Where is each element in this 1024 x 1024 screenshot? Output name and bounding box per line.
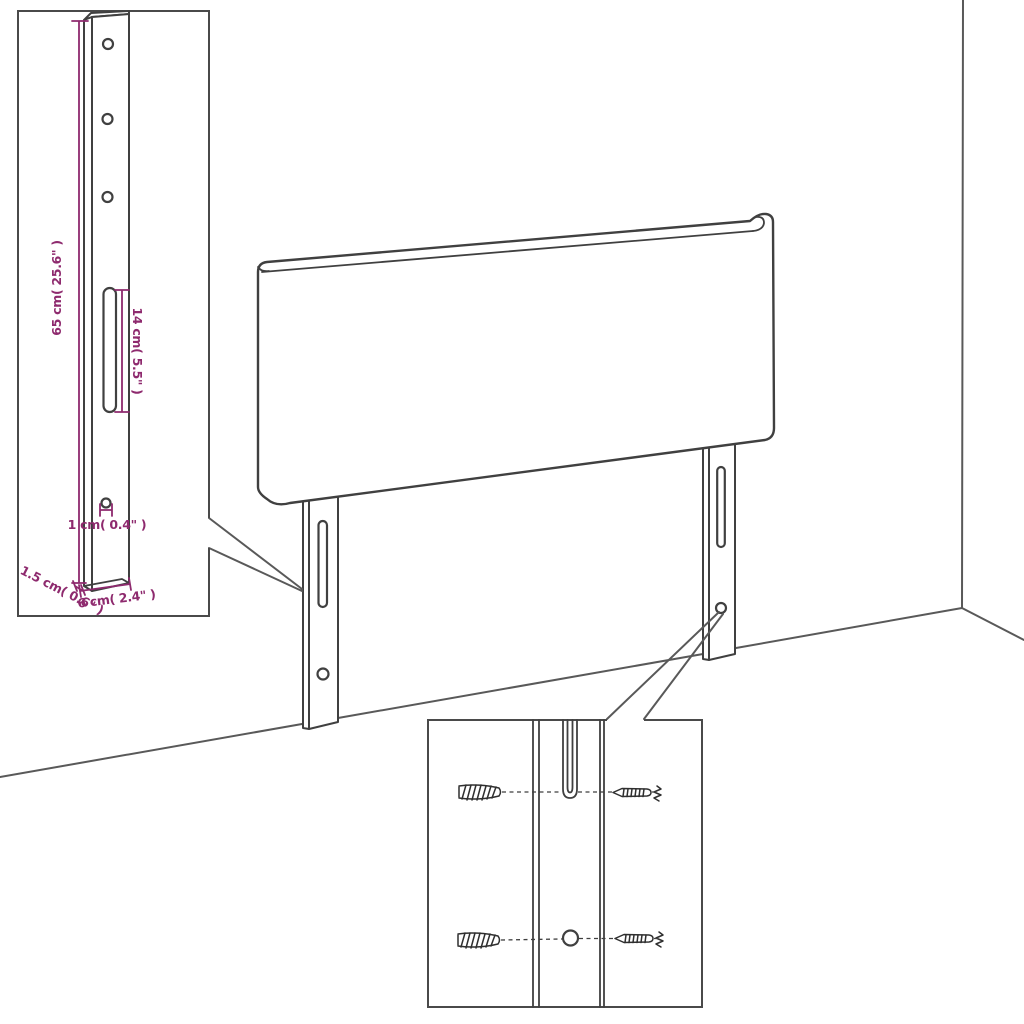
dimension-detail-inset: 65 cm( 25.6" ) 14 cm( 5.5" ) 1 cm( 0.4" … [18, 11, 209, 617]
screw-turn-squiggle [656, 932, 663, 947]
dimension-label-14cm: 14 cm( 5.5" ) [130, 307, 145, 394]
mounting-detail-inset [428, 720, 702, 1007]
mounting-hole [563, 931, 578, 946]
screw-turn-squiggle [654, 786, 661, 801]
callout-lines-left-inset [209, 518, 302, 591]
dimension-label-1cm: 1 cm( 0.4" ) [68, 517, 147, 532]
mounting-slot [563, 720, 577, 798]
headboard-left-leg [303, 493, 338, 729]
headboard-panel [258, 214, 774, 504]
screw-icon [613, 786, 661, 801]
alignment-dashes-bottom-row [501, 939, 658, 941]
headboard-outline [258, 214, 774, 504]
diagram-canvas: 65 cm( 25.6" ) 14 cm( 5.5" ) 1 cm( 0.4" … [0, 0, 1024, 1024]
left-leg-front-face [309, 493, 338, 729]
dimension-label-65cm: 65 cm( 25.6" ) [49, 240, 64, 335]
wall-corner-vertical-line [962, 0, 963, 608]
leg-strip-edges [533, 720, 604, 1007]
headboard-right-leg [703, 439, 735, 660]
dimension-leg-height: 65 cm( 25.6" ) [49, 21, 88, 583]
wall-plug-icon [459, 785, 501, 800]
screw-icon [615, 932, 663, 947]
assembly-diagram-page: 65 cm( 25.6" ) 14 cm( 5.5" ) 1 cm( 0.4" … [0, 0, 1024, 1024]
mounting-inset-border [428, 720, 702, 1007]
floor-line [0, 608, 1024, 777]
wall-plug-icon [458, 933, 500, 948]
bracket-side-face [84, 17, 92, 591]
